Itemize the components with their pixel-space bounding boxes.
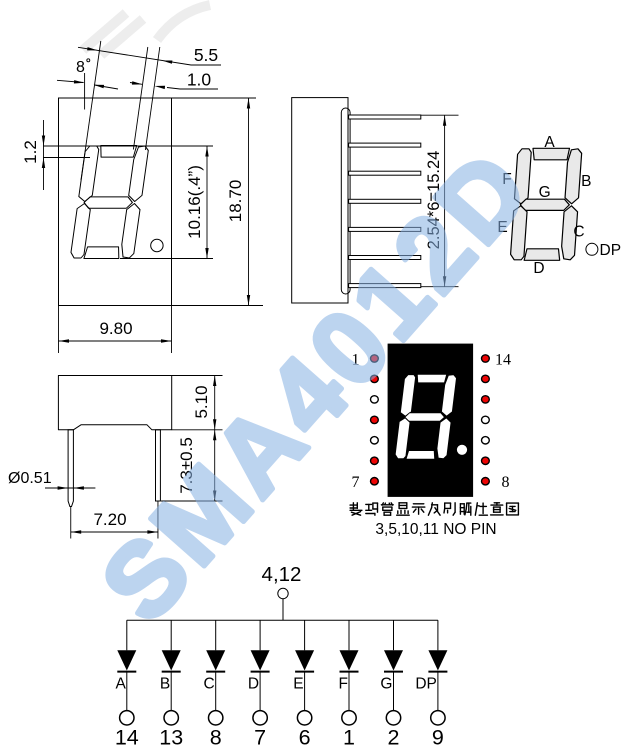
svg-text:1.2: 1.2 xyxy=(21,140,40,164)
svg-text:14: 14 xyxy=(495,352,511,369)
svg-text:3,5,10,11 NO PIN: 3,5,10,11 NO PIN xyxy=(375,521,496,538)
svg-text:C: C xyxy=(573,224,584,241)
svg-text:13: 13 xyxy=(159,726,183,750)
svg-text:18.70: 18.70 xyxy=(226,180,245,223)
svg-text:1: 1 xyxy=(343,726,355,750)
svg-text:5.5: 5.5 xyxy=(194,45,218,65)
svg-text:6: 6 xyxy=(299,726,311,750)
svg-text:7: 7 xyxy=(352,474,360,491)
svg-text:9.80: 9.80 xyxy=(99,319,132,338)
svg-text:F: F xyxy=(339,676,348,693)
svg-text:2: 2 xyxy=(387,726,399,750)
svg-text:Ø0.51: Ø0.51 xyxy=(8,470,52,487)
svg-text:4,12: 4,12 xyxy=(262,563,302,586)
svg-text:9: 9 xyxy=(432,726,444,750)
svg-text:G: G xyxy=(380,676,392,693)
svg-text:D: D xyxy=(248,676,259,693)
svg-text:DP: DP xyxy=(600,242,622,259)
svg-text:D: D xyxy=(533,260,544,277)
svg-text:DP: DP xyxy=(415,676,437,693)
svg-text:8: 8 xyxy=(210,726,222,750)
svg-text:7: 7 xyxy=(254,726,266,750)
svg-text:B: B xyxy=(581,173,591,190)
svg-text:14: 14 xyxy=(115,726,139,750)
svg-text:1.0: 1.0 xyxy=(187,70,212,90)
svg-text:10.16(.4”): 10.16(.4”) xyxy=(185,165,204,239)
svg-text:A: A xyxy=(115,676,126,693)
svg-text:A: A xyxy=(544,134,555,151)
svg-text:8: 8 xyxy=(502,474,510,491)
svg-text:E: E xyxy=(293,676,303,693)
svg-text:8: 8 xyxy=(76,59,85,76)
svg-text:C: C xyxy=(203,676,214,693)
svg-text:SMA4012D: SMA4012D xyxy=(80,128,555,643)
svg-text:5.10: 5.10 xyxy=(192,385,211,418)
svg-text:B: B xyxy=(160,676,170,693)
